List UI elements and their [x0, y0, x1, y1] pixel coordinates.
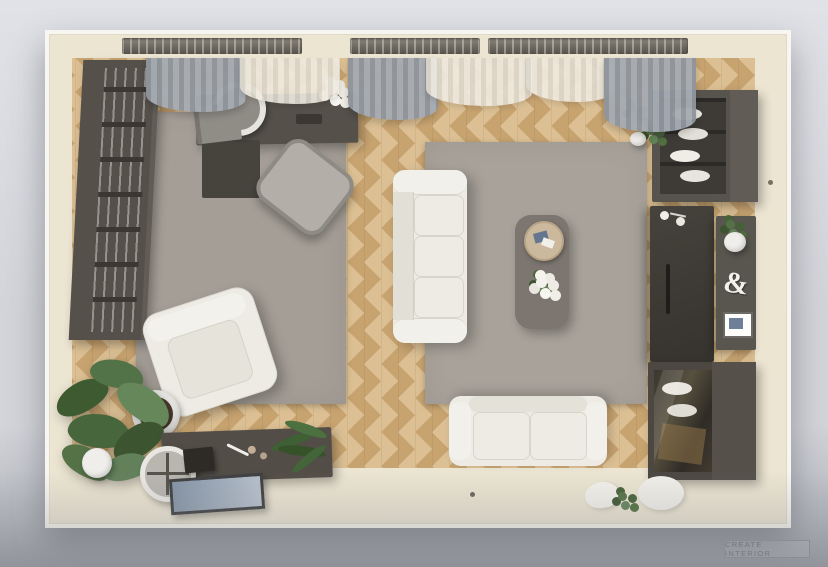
wall-shelf: &: [716, 216, 756, 350]
loveseat-arm-right: [585, 402, 607, 460]
three-seat-sofa: [393, 170, 467, 342]
curtain-sheer: [426, 58, 532, 106]
tall-cabinet: [650, 206, 714, 362]
loveseat: [449, 396, 607, 466]
curtain-gray: [604, 58, 696, 132]
palm-plant: [268, 418, 332, 470]
cabinet-front-face: [712, 362, 756, 480]
interior-render: & CREATE INTERIOR: [0, 0, 828, 567]
window-top-left: [122, 38, 302, 54]
small-planter: [82, 448, 112, 478]
curtain-sheer: [526, 58, 616, 102]
curtain-gray: [146, 58, 246, 112]
shelf-photo-frame: [723, 312, 753, 338]
white-bowl: [638, 476, 684, 510]
sofa-backrest: [393, 192, 414, 320]
sofa-arm-bottom: [393, 318, 467, 343]
watermark-badge: CREATE INTERIOR: [724, 540, 810, 558]
loveseat-cushion: [530, 412, 587, 460]
cabinet-handle: [666, 264, 670, 314]
bookshelf-books: [91, 68, 149, 332]
watermark-label: CREATE INTERIOR: [725, 540, 809, 558]
wall-fixture-dot: [470, 492, 475, 497]
framed-picture: [169, 473, 265, 515]
window-top-center: [350, 38, 480, 54]
loveseat-arm-left: [449, 402, 471, 460]
curtain-gray: [348, 58, 438, 120]
bookshelf: [69, 60, 161, 340]
curtain-sheer: [240, 58, 340, 104]
decor-sculpture: &: [715, 260, 757, 309]
cabinet-side: [730, 90, 758, 202]
shelf-plant-pot: [724, 232, 746, 252]
sofa-cushion: [414, 195, 464, 236]
shelf-plant: [726, 220, 735, 229]
decor-tray: [524, 221, 564, 261]
cabinet-glass-lower: [654, 370, 712, 472]
wall-fixture-dot-right: [768, 180, 773, 185]
window-top-right: [488, 38, 688, 54]
desk-cabinet: [202, 140, 260, 198]
coffee-table: [515, 215, 569, 329]
loveseat-cushion: [473, 412, 530, 460]
glass-display-cabinet-bottom: [648, 362, 756, 480]
cabinet-plant-pot: [630, 132, 646, 146]
desk-tray: [296, 114, 322, 124]
loveseat-backrest: [469, 396, 587, 412]
sofa-cushion: [414, 277, 464, 318]
sofa-cushion: [414, 236, 464, 277]
flower-bouquet: [536, 277, 547, 288]
bottom-greenery: [618, 492, 627, 501]
speaker-box: [183, 446, 215, 473]
